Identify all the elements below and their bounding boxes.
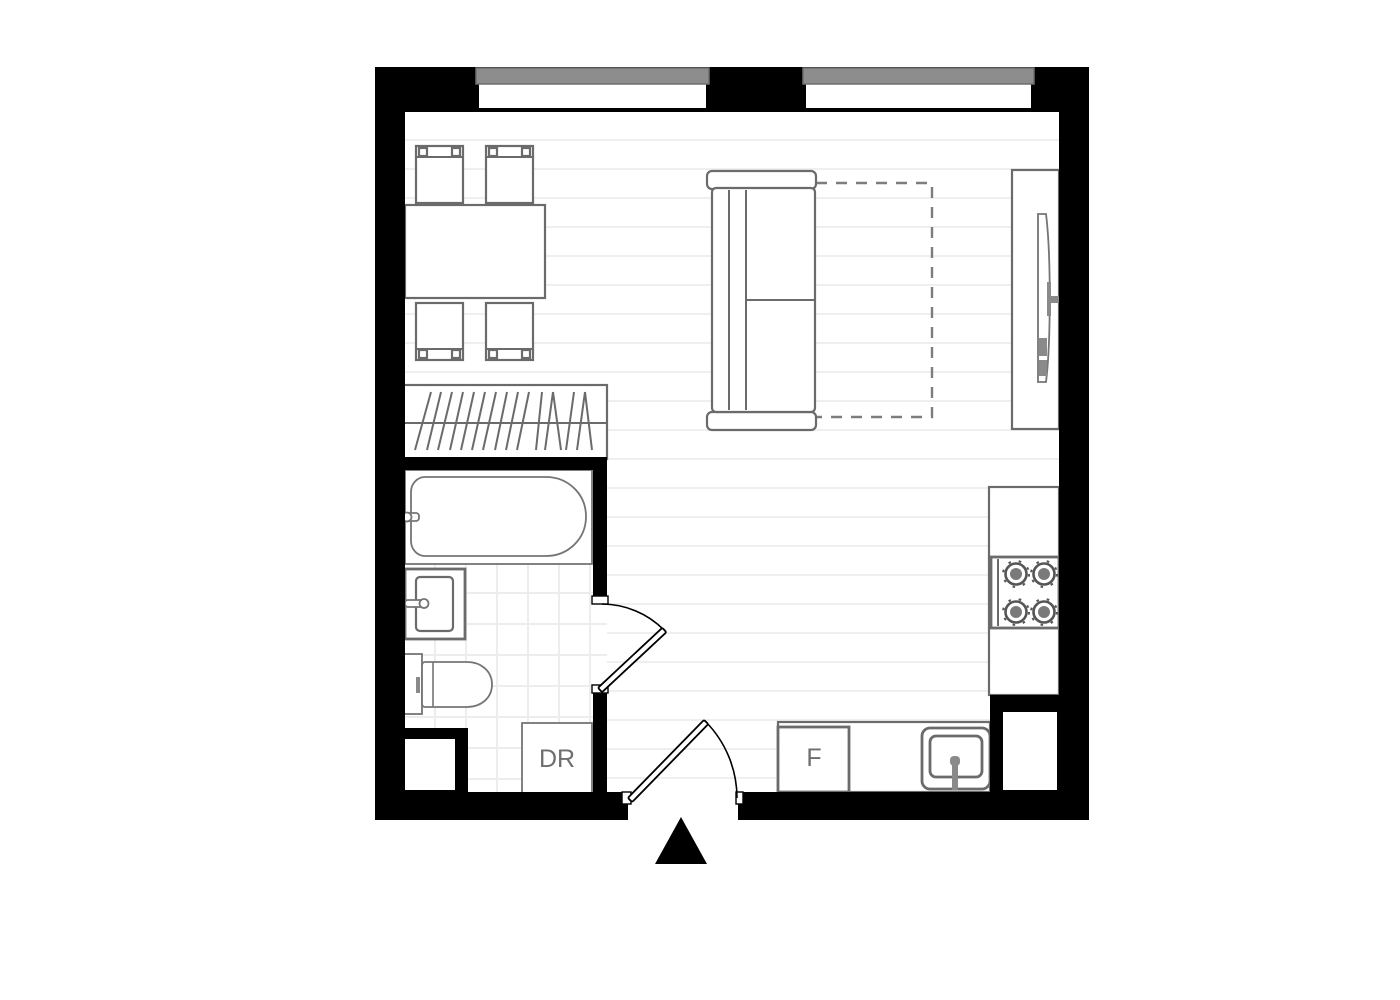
tv-stand bbox=[1039, 360, 1047, 376]
sofa-armrest bbox=[707, 171, 816, 189]
dining-chair bbox=[416, 146, 463, 203]
wall-closet-bathroom bbox=[405, 457, 607, 470]
dining-chair bbox=[486, 146, 533, 203]
bathtub bbox=[411, 477, 586, 556]
tv-mount-arm bbox=[1047, 296, 1060, 303]
window-glass bbox=[803, 68, 1034, 84]
floor-plan-canvas: DR F bbox=[0, 0, 1400, 1000]
dining-chair bbox=[486, 303, 533, 360]
floor-plan-drawing: DR F bbox=[0, 0, 1400, 1000]
sofa-armrest bbox=[707, 412, 816, 430]
wall-bottom-left bbox=[375, 792, 628, 820]
tv-unit bbox=[1012, 170, 1060, 429]
closet bbox=[403, 385, 607, 459]
window-glass bbox=[476, 68, 709, 84]
wall-left bbox=[375, 67, 405, 820]
dresser-label: DR bbox=[539, 745, 575, 773]
fridge-label: F bbox=[806, 744, 821, 772]
dining-table bbox=[405, 205, 545, 298]
toilet-flush bbox=[416, 677, 420, 693]
wall-recess bbox=[1003, 712, 1057, 790]
stove bbox=[991, 557, 1059, 628]
window bbox=[476, 68, 709, 112]
wall-bathroom-upper bbox=[593, 470, 607, 597]
wall-bathroom-lower bbox=[593, 693, 607, 792]
dining-chair bbox=[416, 303, 463, 360]
dresser: DR bbox=[522, 723, 592, 794]
fridge: F bbox=[778, 727, 849, 792]
window bbox=[803, 68, 1034, 112]
kitchen-sink bbox=[922, 728, 990, 790]
tv-stand bbox=[1039, 338, 1047, 356]
entrance-marker-icon bbox=[655, 817, 707, 864]
wall-recess bbox=[405, 739, 455, 790]
